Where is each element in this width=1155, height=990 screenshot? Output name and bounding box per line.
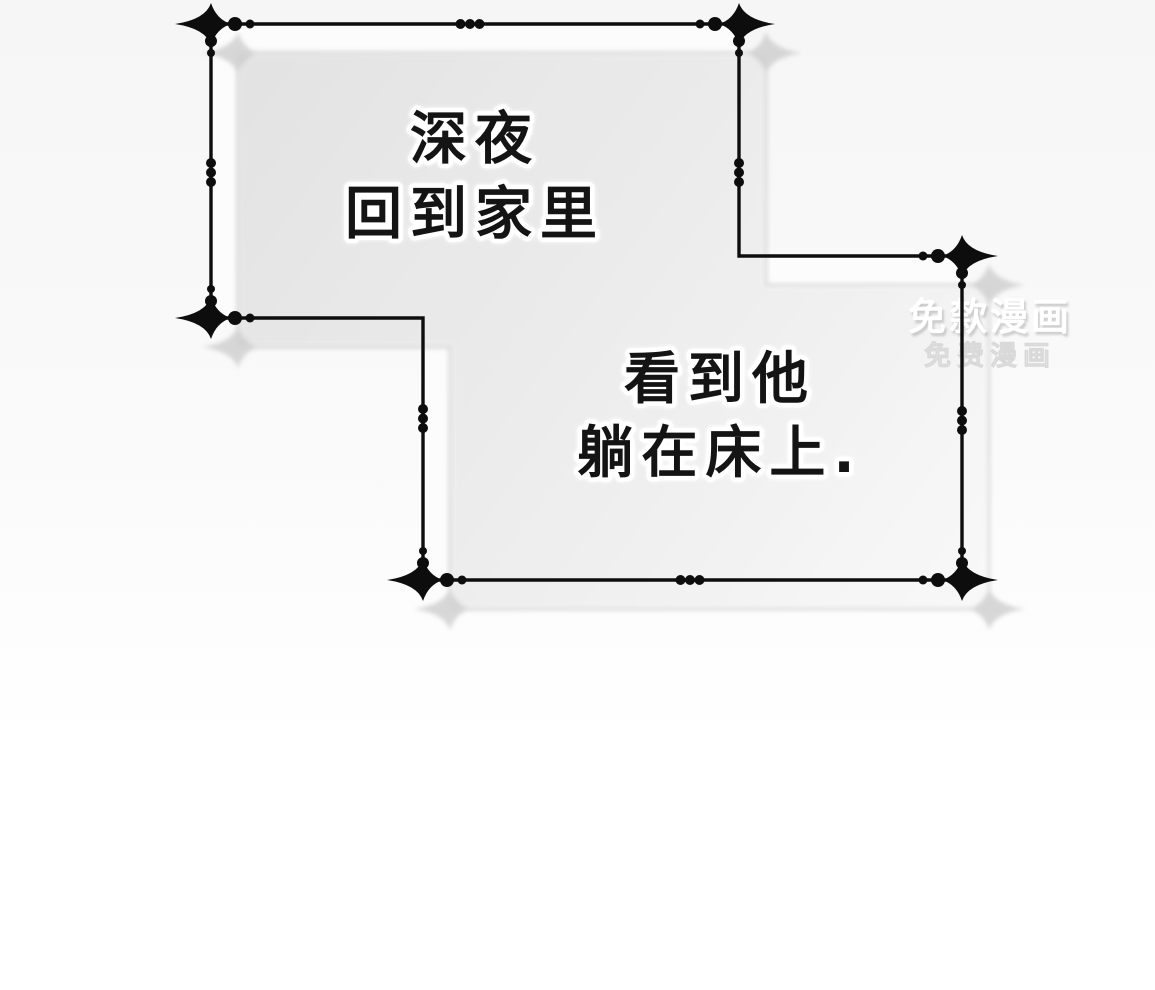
- narration-text-line: 回到家里: [345, 181, 605, 247]
- comic-page: 免歀漫画 免费漫画: [0, 0, 1155, 990]
- watermark: 免歀漫画 免费漫画: [908, 295, 1072, 372]
- comic-canvas: 免歀漫画 免费漫画: [0, 0, 1155, 990]
- narration-text-line: 深夜: [410, 106, 540, 172]
- watermark-text: 免歀漫画: [908, 295, 1072, 339]
- watermark-subtext: 免费漫画: [924, 341, 1056, 372]
- narration-text-line: 躺在床上.: [577, 421, 862, 486]
- narration-text-line: 看到他: [624, 347, 816, 412]
